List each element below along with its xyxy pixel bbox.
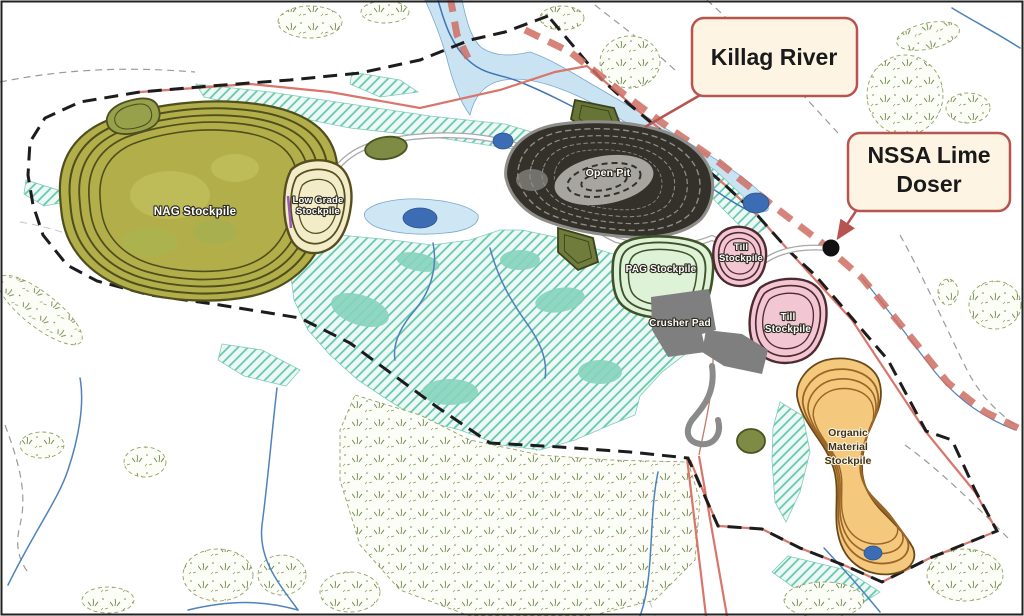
open-pit-label: Open Pit: [586, 167, 631, 179]
map-canvas: NAG Stockpile Low GradeStockpile Open Pi…: [0, 0, 1024, 616]
mine-site-map: NAG Stockpile Low GradeStockpile Open Pi…: [0, 0, 1024, 616]
south-pad: [737, 429, 765, 453]
crusher-pad-label: Crusher Pad: [649, 318, 711, 329]
killag-river-label: Killag River: [711, 44, 838, 70]
nag-stockpile-label: NAG Stockpile: [154, 206, 236, 218]
organic-stockpile-label: OrganicMaterialStockpile: [825, 427, 872, 467]
lime-doser-marker: [823, 240, 840, 257]
pag-stockpile-label: PAG Stockpile: [626, 264, 697, 275]
low-grade-stockpile-label: Low GradeStockpile: [293, 195, 344, 217]
